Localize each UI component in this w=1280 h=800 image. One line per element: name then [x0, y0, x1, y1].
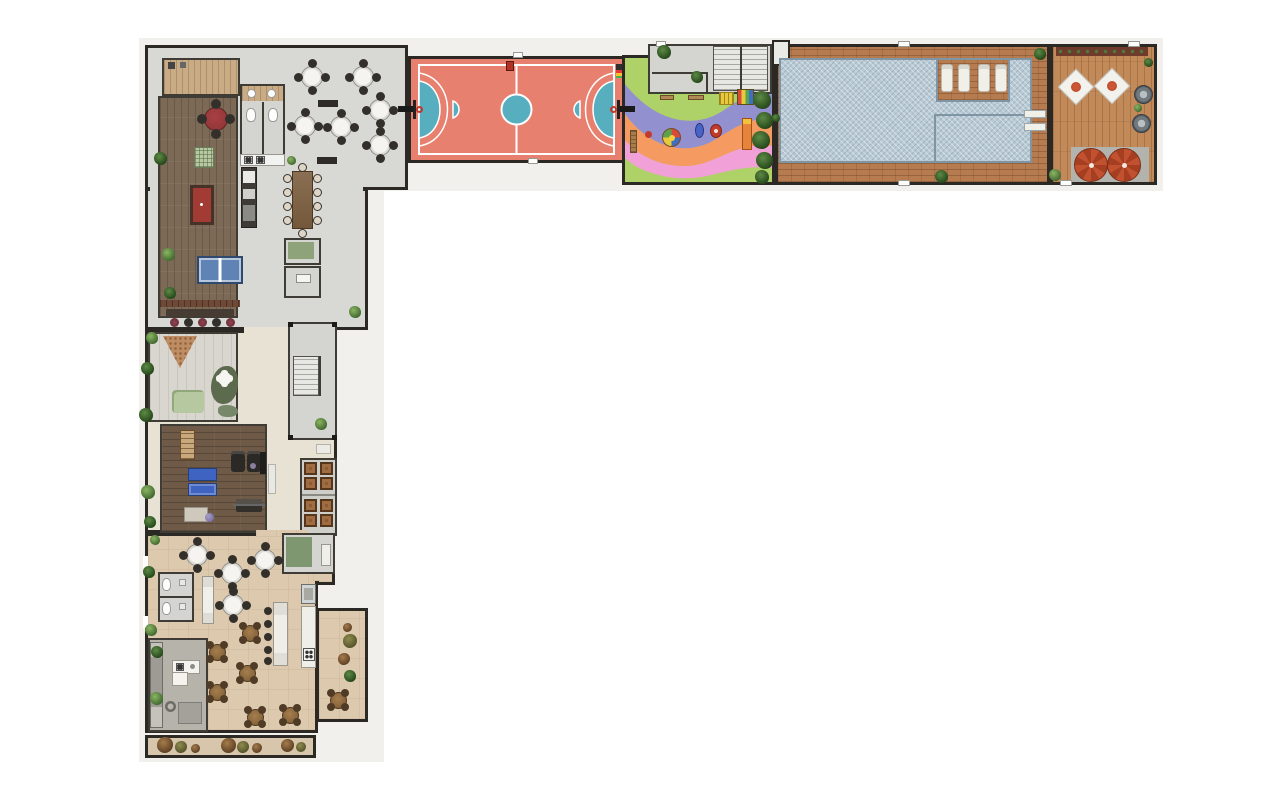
round-table [221, 562, 243, 584]
carousel [662, 128, 681, 147]
long-table-chair [283, 188, 292, 197]
column [288, 322, 293, 327]
patio-umbrella [1074, 148, 1108, 182]
shrub [343, 623, 352, 632]
spring-rider [645, 131, 652, 138]
slide-unit [742, 118, 752, 150]
pantry-floor [286, 537, 312, 567]
appliance [243, 205, 255, 221]
bar-stool [198, 318, 207, 327]
card-table-chair [225, 114, 235, 124]
table-with-chairs [369, 99, 391, 121]
buffet-counter [273, 602, 288, 666]
flower-table [218, 372, 231, 385]
table-with-chairs [301, 66, 323, 88]
long-table-chair [313, 216, 322, 225]
long-table-chair [298, 163, 307, 172]
chair [376, 154, 385, 163]
chair [206, 551, 215, 560]
door-mat [316, 444, 331, 454]
chair [376, 127, 385, 136]
table-with-chairs [221, 562, 243, 584]
round-table [254, 549, 276, 571]
round-table [301, 66, 323, 88]
plant [1144, 58, 1153, 67]
plant [349, 306, 361, 318]
plant [143, 566, 155, 578]
chair [229, 587, 238, 596]
plant [344, 670, 356, 682]
stair-rail [740, 46, 742, 91]
wavy-bench [218, 405, 238, 417]
plant [1049, 169, 1061, 181]
refrigerator [243, 171, 255, 183]
cooktop [244, 156, 253, 164]
long-table-chair [283, 216, 292, 225]
toilet [162, 602, 171, 615]
table-with-chairs [254, 549, 276, 571]
chair [345, 73, 354, 82]
wall-pillar [1128, 41, 1140, 47]
sun-lounger [995, 64, 1007, 92]
grill-station [304, 514, 317, 527]
grill-divider [302, 494, 335, 496]
sun-lounger [941, 64, 953, 92]
chair [193, 537, 202, 546]
chair [389, 141, 398, 150]
chair [376, 92, 385, 101]
buffet-stool [264, 607, 272, 615]
toilet [268, 108, 278, 122]
grill-station [304, 499, 317, 512]
basketball-hoop-arm [398, 106, 414, 112]
chair [242, 601, 251, 610]
plant [756, 112, 773, 129]
chair [308, 86, 317, 95]
plant [691, 71, 703, 83]
plant [752, 131, 770, 149]
plant [150, 535, 160, 545]
staircase [293, 356, 319, 396]
chair [274, 556, 283, 565]
bench [318, 100, 338, 107]
chair [308, 59, 317, 68]
shrub [281, 739, 294, 752]
stair-rail [319, 356, 321, 396]
sun-lounger [978, 64, 990, 92]
appliance [243, 189, 255, 199]
chair [314, 122, 323, 131]
treadmill [231, 451, 245, 472]
spring-rider [710, 124, 722, 138]
patio-mat [178, 702, 202, 724]
playground-bench [630, 130, 637, 153]
chair [279, 704, 287, 712]
sink-unit [301, 584, 316, 604]
long-table-chair [283, 202, 292, 211]
plant [144, 516, 156, 528]
chair [215, 601, 224, 610]
column [332, 322, 337, 327]
plant [756, 152, 773, 169]
treadmill [247, 451, 261, 472]
chair [350, 123, 359, 132]
sink [179, 603, 186, 610]
plant [772, 114, 780, 122]
plant [657, 45, 671, 59]
plant [162, 248, 175, 261]
kitchen-island [172, 672, 188, 686]
basketball-backboard [617, 100, 620, 119]
buffet-stool [264, 633, 272, 641]
chair [301, 108, 310, 117]
chair [389, 106, 398, 115]
plant [141, 362, 154, 375]
stall-divider [262, 102, 264, 154]
shrub [221, 738, 236, 753]
sink [267, 89, 276, 98]
island-cooktop [176, 663, 184, 671]
plant [755, 170, 769, 184]
climbing-frame [737, 89, 754, 105]
chair [206, 641, 214, 649]
chair [294, 73, 303, 82]
toilet [162, 578, 171, 591]
billiard-ball [200, 203, 203, 206]
plant [150, 692, 163, 705]
round-table [186, 544, 208, 566]
floor-plan [0, 0, 1280, 800]
plant [1034, 48, 1046, 60]
chair [193, 564, 202, 573]
person-figure [250, 463, 256, 469]
grill-station [320, 477, 333, 490]
grill-station [320, 499, 333, 512]
chair [239, 622, 247, 630]
sink [247, 89, 256, 98]
table-with-chairs [242, 625, 259, 642]
table-with-chairs [239, 665, 256, 682]
planter-strip [1056, 47, 1148, 56]
buffet-stool [264, 620, 272, 628]
bar-stool [226, 318, 235, 327]
round-table [369, 99, 391, 121]
scoreboard [616, 64, 622, 78]
spa-tub [1134, 85, 1153, 104]
basketball-ring [416, 106, 423, 113]
wall-pillar [898, 180, 910, 186]
chair [372, 73, 381, 82]
table-with-chairs [209, 644, 226, 661]
table-with-chairs [209, 684, 226, 701]
entry-bench [660, 95, 674, 100]
chair [323, 123, 332, 132]
equipment-unit [296, 274, 311, 283]
toilet [246, 108, 256, 122]
plant [164, 287, 176, 299]
bar-counter [166, 309, 234, 317]
island-sink [190, 664, 195, 669]
column [332, 435, 337, 440]
chair [321, 73, 330, 82]
round-table [352, 66, 374, 88]
table-with-chairs [186, 544, 208, 566]
table-with-chairs [369, 134, 391, 156]
plant [141, 485, 155, 499]
chair [287, 122, 296, 131]
card-table-chair [211, 129, 221, 139]
plant [146, 332, 158, 344]
chair [228, 555, 237, 564]
plant [139, 408, 153, 422]
chair [337, 136, 346, 145]
shrub [191, 744, 200, 753]
gym-mat [188, 468, 217, 481]
entry-bench [688, 95, 704, 100]
plant [145, 624, 157, 636]
pool-bench [1024, 110, 1046, 118]
wall-pillar [1060, 180, 1072, 186]
chair [359, 59, 368, 68]
bar-stool [184, 318, 193, 327]
locker-appliance [168, 62, 175, 69]
sink [179, 579, 186, 586]
service-room-floor [288, 242, 314, 259]
grill-station [304, 462, 317, 475]
spa-tub [1132, 114, 1151, 133]
wall-pillar [528, 158, 538, 164]
table-with-chairs [294, 115, 316, 137]
chair [241, 569, 250, 578]
table-with-chairs [330, 116, 352, 138]
locker-appliance [180, 62, 186, 68]
chair [206, 681, 214, 689]
grill-station [304, 477, 317, 490]
entry-inner-wall [706, 72, 708, 92]
round-table [294, 115, 316, 137]
corridor-mat [268, 464, 276, 494]
pantry-counter [321, 544, 331, 566]
chair [337, 109, 346, 118]
table-tennis-table [197, 256, 243, 284]
long-table-chair [313, 202, 322, 211]
long-table-chair [298, 229, 307, 238]
bench [317, 157, 337, 164]
plant [935, 170, 948, 183]
chair [214, 569, 223, 578]
basketball-ring [610, 106, 617, 113]
chair [301, 135, 310, 144]
chair [179, 551, 188, 560]
gym-mat [188, 483, 217, 496]
bar-stool [170, 318, 179, 327]
chair [261, 569, 270, 578]
buffet-stool [264, 646, 272, 654]
chair [362, 141, 371, 150]
wall-pillar [513, 52, 523, 58]
barbell [233, 504, 265, 506]
round-table [222, 594, 244, 616]
round-table [369, 134, 391, 156]
sports-court [408, 56, 625, 163]
plant [151, 646, 163, 658]
chair [247, 556, 256, 565]
round-table [330, 116, 352, 138]
table-with-chairs [352, 66, 374, 88]
communal-table [292, 171, 313, 229]
chair [229, 614, 238, 623]
table-with-chairs [222, 594, 244, 616]
buffet-stool [264, 657, 272, 665]
column [288, 435, 293, 440]
long-table-chair [313, 188, 322, 197]
climbing-frame [719, 92, 734, 105]
patio-umbrella [1107, 148, 1141, 182]
exercise-ball [205, 513, 214, 522]
table-with-chairs [282, 707, 299, 724]
table-with-chairs [330, 692, 347, 709]
plant [154, 152, 167, 165]
cable-station [260, 452, 266, 474]
chair [261, 542, 270, 551]
wall-bars [180, 430, 195, 460]
board-game-table [194, 147, 214, 168]
cooktop [256, 156, 265, 164]
sun-lounger [958, 64, 970, 92]
lap-lane-divider [934, 114, 936, 163]
plant [1134, 104, 1142, 112]
play-mat [172, 390, 204, 413]
bar-stool [212, 318, 221, 327]
chair [362, 106, 371, 115]
stall-divider [158, 596, 194, 598]
ball-cart [506, 61, 514, 71]
plant [753, 91, 771, 109]
court-markings [411, 59, 622, 160]
long-table-chair [313, 174, 322, 183]
table-with-chairs [247, 709, 264, 726]
chair [327, 689, 335, 697]
floor-mat [184, 507, 208, 522]
grill-station [320, 514, 333, 527]
chair [244, 706, 252, 714]
round-grill [165, 701, 176, 712]
card-table-chair [197, 114, 207, 124]
wall-pillar [898, 41, 910, 47]
basketball-hoop-arm [619, 106, 635, 112]
spring-rider [695, 123, 704, 138]
plant [315, 418, 327, 430]
stove [303, 648, 315, 661]
chair [236, 662, 244, 670]
long-table-chair [283, 174, 292, 183]
grill-station [320, 462, 333, 475]
pool-bench [1024, 123, 1046, 131]
bar-brick-wall [160, 300, 240, 307]
buffet-cabinet [202, 576, 214, 624]
plant [287, 156, 296, 165]
card-table-chair [211, 99, 221, 109]
chair [359, 86, 368, 95]
lap-lane-divider [934, 114, 1032, 116]
